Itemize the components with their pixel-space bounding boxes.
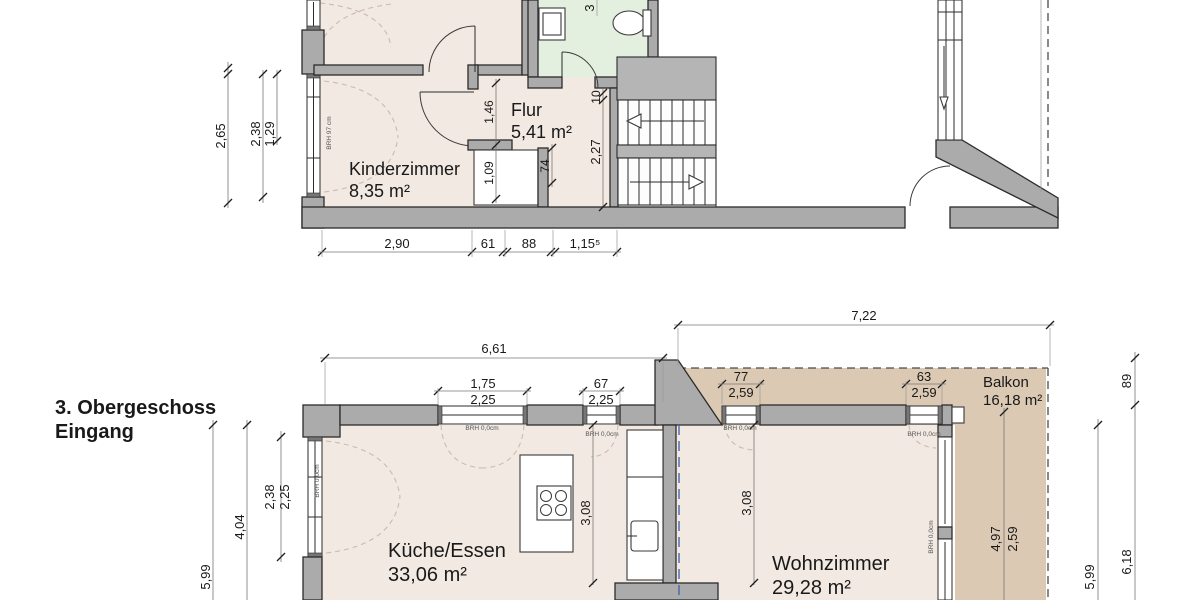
bathroom-sink bbox=[539, 8, 565, 40]
dim-618-right: 6,18 bbox=[1119, 549, 1134, 574]
dim-win1-h: 2,25 bbox=[470, 392, 495, 407]
window-upper-left-top bbox=[307, 0, 320, 30]
window-kitchen-small bbox=[583, 406, 620, 424]
room-label-kinderzimmer-name: Kinderzimmer bbox=[349, 159, 460, 179]
dim-partial-top: 3 bbox=[582, 4, 597, 11]
dim-int-227: 2,27 bbox=[588, 139, 603, 164]
dim-404-left: 4,04 bbox=[232, 514, 247, 539]
room-label-wohn-area: 29,28 m² bbox=[772, 577, 851, 599]
shaft bbox=[938, 0, 962, 140]
dim-int-10: 10 bbox=[589, 90, 603, 104]
kitchen-island bbox=[520, 455, 573, 552]
wall-kitchen-living bbox=[663, 425, 676, 583]
dim-308-kitchen: 3,08 bbox=[578, 500, 593, 525]
dim-int-146: 1,46 bbox=[482, 100, 496, 124]
dim-bottom-1155: 1,15⁵ bbox=[570, 236, 601, 251]
room-label-wohn-name: Wohnzimmer bbox=[772, 553, 890, 575]
dim-bottom-61: 61 bbox=[481, 236, 495, 251]
dim-238-left: 2,38 bbox=[262, 484, 277, 509]
wall bbox=[303, 405, 340, 437]
window-kinderzimmer bbox=[307, 74, 320, 197]
room-label-kueche-name: Küche/Essen bbox=[388, 540, 506, 562]
wall bbox=[302, 207, 905, 228]
wall bbox=[468, 65, 478, 89]
wall bbox=[527, 405, 583, 425]
dim-top-722: 7,22 bbox=[851, 308, 876, 323]
dim-497-balcony: 4,97 bbox=[988, 526, 1003, 551]
wall bbox=[303, 557, 322, 600]
stair-landing bbox=[617, 57, 716, 100]
room-label-flur-name: Flur bbox=[511, 100, 542, 120]
dim-left-238: 2,38 bbox=[248, 121, 263, 146]
floor-title-line1: 3. Obergeschoss bbox=[55, 397, 216, 419]
bathroom-toilet bbox=[613, 10, 651, 36]
dim-int-74: 74 bbox=[538, 159, 552, 173]
dim-win2-w: 67 bbox=[594, 376, 608, 391]
dim-win3-w: 77 bbox=[734, 369, 748, 384]
dim-bottom-88: 88 bbox=[522, 236, 536, 251]
stair-mid-landing bbox=[617, 145, 716, 158]
dim-top-661: 6,61 bbox=[481, 341, 506, 356]
note-brh-w3: BRH 0,0cm bbox=[723, 425, 756, 432]
kitchen-counter bbox=[627, 430, 663, 580]
note-brh-w2: BRH 0,0cm bbox=[585, 431, 618, 438]
floor-title-line2: Eingang bbox=[55, 421, 134, 443]
dim-599-right: 5,99 bbox=[1082, 564, 1097, 589]
dim-left-129: 1,29 bbox=[262, 121, 277, 146]
kitchen-fill bbox=[322, 425, 663, 600]
window-living-right bbox=[906, 406, 942, 424]
window-living-east bbox=[938, 425, 952, 600]
dim-bottom-290: 2,90 bbox=[384, 236, 409, 251]
dim-308-living: 3,08 bbox=[739, 490, 754, 515]
dim-win2-h: 2,25 bbox=[588, 392, 613, 407]
floorplan-page: Kinderzimmer 8,35 m² Flur 5,41 m² 2,65 2… bbox=[0, 0, 1200, 600]
dim-89-right: 89 bbox=[1119, 374, 1134, 388]
wall bbox=[620, 405, 658, 425]
dim-259-balcony: 2,59 bbox=[1005, 526, 1020, 551]
wall bbox=[538, 148, 548, 207]
staircase bbox=[617, 57, 716, 207]
dim-int-109: 1,09 bbox=[482, 161, 496, 185]
window-living-left bbox=[722, 406, 760, 424]
dim-win4-h: 2,59 bbox=[911, 385, 936, 400]
dim-win3-h: 2,59 bbox=[728, 385, 753, 400]
dim-225-left: 2,25 bbox=[277, 484, 292, 509]
cooktop bbox=[537, 486, 571, 520]
room-label-balkon-area: 16,18 m² bbox=[983, 392, 1042, 409]
floorplan-canvas: Kinderzimmer 8,35 m² Flur 5,41 m² 2,65 2… bbox=[0, 0, 1200, 600]
wall bbox=[468, 140, 512, 150]
balcony-door bbox=[952, 407, 964, 423]
room-label-flur-area: 5,41 m² bbox=[511, 122, 572, 142]
dim-win4-w: 63 bbox=[917, 369, 931, 384]
wall bbox=[760, 405, 906, 425]
dim-win1-w: 1,75 bbox=[470, 376, 495, 391]
wall bbox=[314, 65, 423, 75]
note-brh-west: BRH 0,0cm bbox=[314, 464, 321, 497]
room-label-balkon-name: Balkon bbox=[983, 374, 1029, 391]
wall bbox=[615, 583, 718, 600]
wall bbox=[475, 65, 522, 75]
wall bbox=[942, 405, 952, 425]
window-kitchen-large bbox=[438, 406, 527, 424]
note-brh-east: BRH 0,0cm bbox=[928, 520, 935, 553]
wall bbox=[528, 77, 562, 88]
room-label-kueche-area: 33,06 m² bbox=[388, 564, 467, 586]
room-label-kinderzimmer-area: 8,35 m² bbox=[349, 181, 410, 201]
note-brh-kinderzimmer: BRH 97 cm bbox=[326, 116, 333, 149]
wall bbox=[528, 0, 538, 77]
dim-599-left: 5,99 bbox=[198, 564, 213, 589]
wall bbox=[340, 405, 438, 425]
dim-left-265: 2,65 bbox=[213, 123, 228, 148]
note-brh-w1: BRH 0,0cm bbox=[465, 425, 498, 432]
note-brh-w4: BRH 0,0cm bbox=[907, 431, 940, 438]
